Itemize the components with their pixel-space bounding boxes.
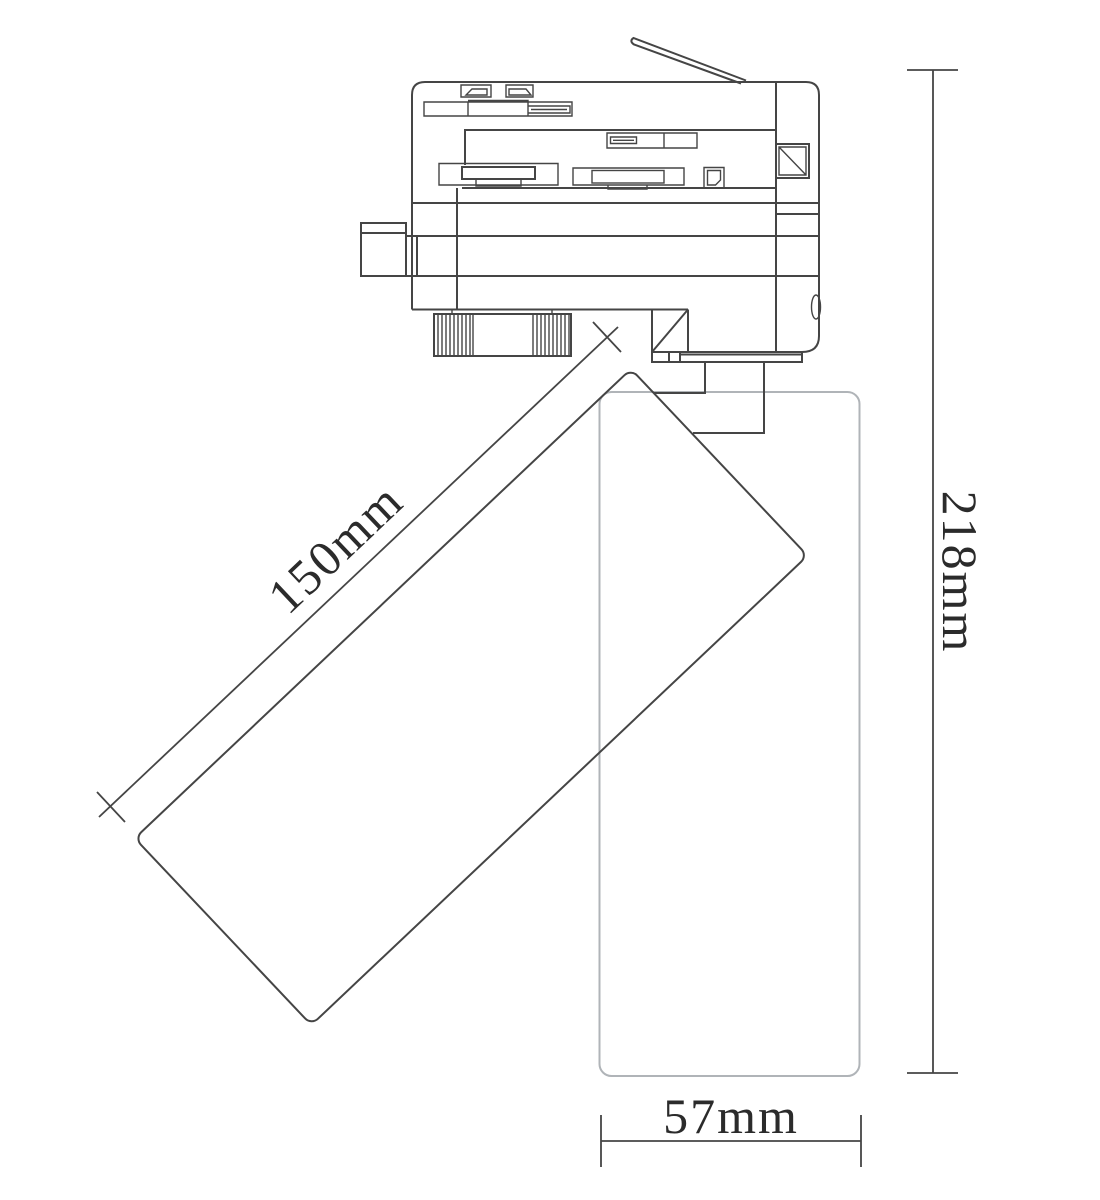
contact-slot-wedges xyxy=(466,89,531,95)
dimension-label-height: 218mm xyxy=(932,491,988,654)
technical-drawing: 150mm 218mm 57mm xyxy=(0,0,1100,1200)
dimension-57: 57mm xyxy=(601,1088,861,1167)
spotlight-cylinder-outline xyxy=(135,369,808,1025)
spotlight-body xyxy=(135,369,808,1025)
pivot-triangle-block xyxy=(652,310,688,353)
ghost-lamp-body xyxy=(600,392,860,1076)
notched-square-detail xyxy=(704,168,724,189)
dimension-label-length: 150mm xyxy=(257,472,414,625)
clamp-square-diagonal xyxy=(779,147,806,175)
adapter-band-lines xyxy=(405,83,819,352)
knob-knurl-left xyxy=(438,314,470,356)
mid-block-right-insert xyxy=(592,171,664,184)
mid-block-left-insert xyxy=(462,167,535,179)
pivot-stem xyxy=(654,362,764,433)
adapter-outline xyxy=(412,82,819,352)
terminal-box xyxy=(361,223,406,276)
pivot-plate xyxy=(652,352,802,362)
contact-slot-small xyxy=(607,133,697,148)
dim-150-line xyxy=(99,327,618,817)
release-lever xyxy=(631,38,746,84)
dimension-218: 218mm xyxy=(907,70,988,1073)
spotlight-dimension-diagram: 150mm 218mm 57mm xyxy=(0,0,1100,1200)
dimension-label-width: 57mm xyxy=(663,1088,799,1144)
knob-knurl-right xyxy=(537,314,569,356)
sliding-contact-slot xyxy=(424,101,572,117)
track-adapter xyxy=(361,38,821,352)
knurled-knob xyxy=(434,310,571,357)
dimension-150: 150mm xyxy=(97,322,621,822)
ghost-body-outline xyxy=(600,392,860,1076)
